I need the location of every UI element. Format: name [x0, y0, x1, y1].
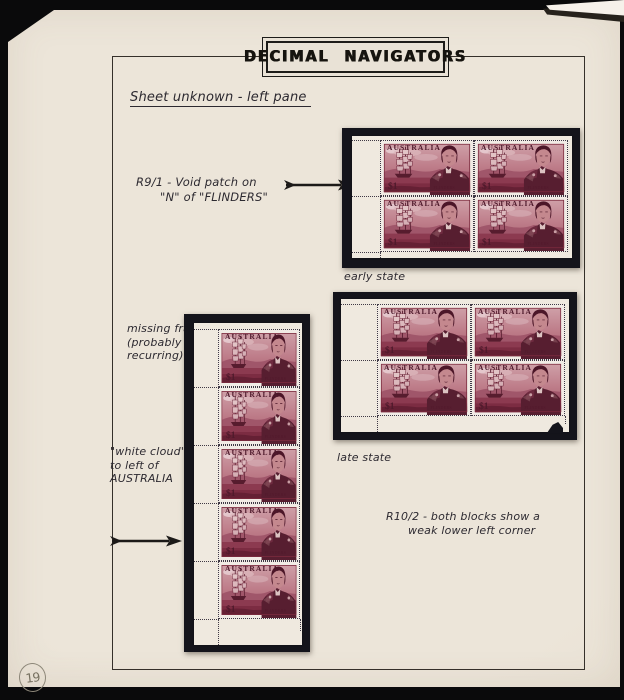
- stamp-grid: AUSTRALIA$1FLINDERS AUSTRALIA$1FLINDERS …: [218, 329, 300, 619]
- late-state-caption: late state: [337, 451, 391, 464]
- perforation-line: [194, 329, 219, 330]
- page-title: DECIMAL NAVIGATORS: [244, 48, 467, 66]
- stamp-grid: AUSTRALIA$1FLINDERS AUSTRALIA$1FLINDERS …: [377, 304, 565, 416]
- title-box: DECIMAL NAVIGATORS: [262, 37, 449, 77]
- white-cloud-line1: "white cloud": [110, 445, 186, 459]
- perforation-line: [194, 619, 219, 620]
- r9-annotation: R9/1 - Void patch on "N" of "FLINDERS": [136, 175, 268, 204]
- torn-corner: [547, 422, 563, 433]
- perforation-line: [352, 196, 381, 197]
- stamp-country-label: AUSTRALIA: [225, 448, 279, 457]
- stamp-caption-label: FLINDERS: [265, 492, 287, 497]
- perforation-line: [341, 360, 378, 361]
- stamp-denomination-label: $1: [482, 182, 492, 192]
- stamp-denomination-label: $1: [388, 182, 398, 192]
- stamp-denomination-label: $1: [226, 431, 236, 441]
- arrow-right-icon: [110, 532, 184, 550]
- stamp-country-label: AUSTRALIA: [225, 564, 279, 573]
- stamp-country-label: AUSTRALIA: [481, 143, 535, 152]
- stamp: AUSTRALIA$1FLINDERS: [471, 304, 565, 360]
- perforation-line: [300, 619, 301, 631]
- stamp-denomination-label: $1: [388, 238, 398, 248]
- perforation-line: [341, 416, 378, 417]
- stamp-denomination-label: $1: [385, 346, 395, 356]
- stamp-country-label: AUSTRALIA: [225, 506, 279, 515]
- perforation-line: [352, 252, 381, 253]
- perforation-line: [194, 503, 219, 504]
- photo-backdrop: DECIMAL NAVIGATORS Sheet unknown - left …: [0, 0, 624, 700]
- stamp-caption-label: FLINDERS: [527, 241, 549, 246]
- perforation-line: [377, 416, 378, 432]
- stamp-country-label: AUSTRALIA: [387, 199, 441, 208]
- stamp-denomination-label: $1: [479, 346, 489, 356]
- stamp-pane: AUSTRALIA$1FLINDERS AUSTRALIA$1FLINDERS …: [352, 136, 572, 258]
- stamp: AUSTRALIA$1FLINDERS: [218, 445, 300, 503]
- stamp-caption-label: FLINDERS: [433, 185, 455, 190]
- r9-annotation-line1: R9/1 - Void patch on: [136, 175, 268, 190]
- stamp-denomination-label: $1: [479, 402, 489, 412]
- r10-annotation-line2: weak lower left corner: [408, 524, 540, 538]
- perforation-line: [194, 387, 219, 388]
- stamp-country-label: AUSTRALIA: [478, 307, 532, 316]
- stamp-strip-mount: AUSTRALIA$1FLINDERS AUSTRALIA$1FLINDERS …: [184, 314, 310, 652]
- white-cloud-annotation: "white cloud" to left of AUSTRALIA: [110, 445, 186, 486]
- stamp-caption-label: FLINDERS: [524, 349, 546, 354]
- stamp: AUSTRALIA$1FLINDERS: [380, 196, 474, 252]
- stamp-pane: AUSTRALIA$1FLINDERS AUSTRALIA$1FLINDERS …: [194, 323, 302, 645]
- stamp-block-late-state-mount: AUSTRALIA$1FLINDERS AUSTRALIA$1FLINDERS …: [333, 292, 577, 440]
- stamp-caption-label: FLINDERS: [527, 185, 549, 190]
- stamp-denomination-label: $1: [385, 402, 395, 412]
- stamp-country-label: AUSTRALIA: [384, 307, 438, 316]
- title-box-inner-border: DECIMAL NAVIGATORS: [266, 41, 445, 73]
- stamp-caption-label: FLINDERS: [265, 608, 287, 613]
- stamp-grid: AUSTRALIA$1FLINDERS AUSTRALIA$1FLINDERS …: [380, 140, 568, 252]
- stamp: AUSTRALIA$1FLINDERS: [377, 360, 471, 416]
- stamp-denomination-label: $1: [482, 238, 492, 248]
- stamp-caption-label: FLINDERS: [265, 550, 287, 555]
- white-cloud-line2: to left of: [110, 459, 186, 473]
- perforation-line: [194, 445, 219, 446]
- stamp: AUSTRALIA$1FLINDERS: [218, 329, 300, 387]
- stamp: AUSTRALIA$1FLINDERS: [218, 503, 300, 561]
- stamp-denomination-label: $1: [226, 605, 236, 615]
- white-cloud-line3: AUSTRALIA: [110, 472, 186, 486]
- stamp: AUSTRALIA$1FLINDERS: [377, 304, 471, 360]
- early-state-caption: early state: [344, 270, 405, 283]
- stamp-country-label: AUSTRALIA: [384, 363, 438, 372]
- perforation-line: [565, 416, 566, 424]
- stamp: AUSTRALIA$1FLINDERS: [471, 360, 565, 416]
- sheet-heading: Sheet unknown - left pane: [130, 90, 311, 107]
- stamp-country-label: AUSTRALIA: [225, 390, 279, 399]
- perforation-line: [194, 561, 219, 562]
- stamp-denomination-label: $1: [226, 547, 236, 557]
- perforation-line: [341, 304, 378, 305]
- stamp-caption-label: FLINDERS: [430, 405, 452, 410]
- stamp: AUSTRALIA$1FLINDERS: [474, 196, 568, 252]
- stamp-denomination-label: $1: [226, 489, 236, 499]
- perforation-line: [352, 140, 381, 141]
- perforation-line: [380, 252, 381, 258]
- stamp: AUSTRALIA$1FLINDERS: [380, 140, 474, 196]
- stamp-caption-label: FLINDERS: [433, 241, 455, 246]
- r10-annotation: R10/2 - both blocks show a weak lower le…: [386, 510, 540, 538]
- stamp-country-label: AUSTRALIA: [387, 143, 441, 152]
- stamp-denomination-label: $1: [226, 373, 236, 383]
- stamp-country-label: AUSTRALIA: [478, 363, 532, 372]
- stamp-caption-label: FLINDERS: [265, 376, 287, 381]
- stamp-caption-label: FLINDERS: [265, 434, 287, 439]
- stamp-caption-label: FLINDERS: [430, 349, 452, 354]
- stamp-country-label: AUSTRALIA: [481, 199, 535, 208]
- stamp-country-label: AUSTRALIA: [225, 332, 279, 341]
- stamp: AUSTRALIA$1FLINDERS: [474, 140, 568, 196]
- stamp: AUSTRALIA$1FLINDERS: [218, 387, 300, 445]
- r9-annotation-line2: "N" of "FLINDERS": [160, 190, 268, 205]
- perforation-line: [218, 619, 219, 645]
- stamp-caption-label: FLINDERS: [524, 405, 546, 410]
- stamp-block-early-state-mount: AUSTRALIA$1FLINDERS AUSTRALIA$1FLINDERS …: [342, 128, 580, 268]
- r10-annotation-line1: R10/2 - both blocks show a: [386, 510, 540, 524]
- stamp-pane: AUSTRALIA$1FLINDERS AUSTRALIA$1FLINDERS …: [341, 299, 569, 432]
- stamp: AUSTRALIA$1FLINDERS: [218, 561, 300, 619]
